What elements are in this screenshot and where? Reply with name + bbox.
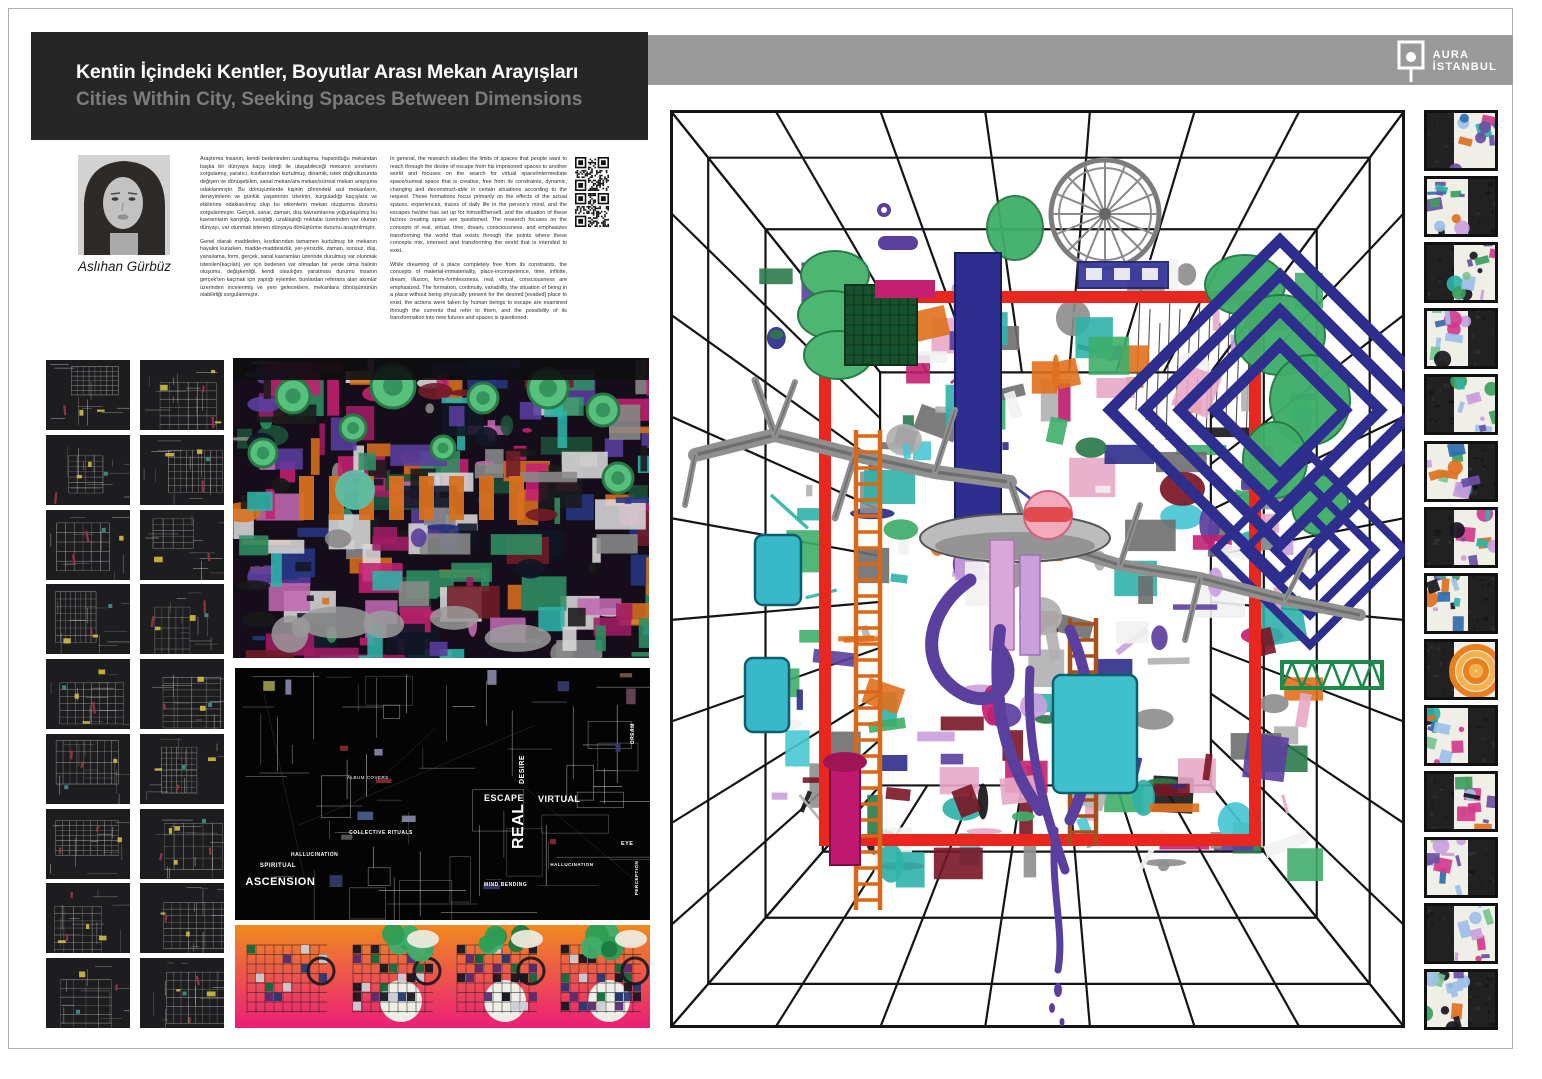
render-thumbnail	[1424, 441, 1498, 502]
cad-thumbnail	[46, 809, 130, 879]
bio-paragraph-en-2: While dreaming of a place completely fre…	[390, 262, 567, 323]
cad-thumbnail	[140, 883, 224, 953]
aura-logo-text: AURA İSTANBUL	[1433, 49, 1497, 73]
cad-thumbnail	[46, 958, 130, 1028]
render-thumbnail	[1424, 837, 1498, 898]
bio-paragraph-tr-2: Genel olarak maddeden, kısıtlarından tam…	[200, 239, 377, 300]
cad-thumbnail	[140, 435, 224, 505]
render-thumbnail	[1424, 176, 1498, 237]
cad-thumbnail	[46, 435, 130, 505]
cad-thumbnail	[140, 809, 224, 879]
qr-code	[575, 157, 609, 191]
cad-thumbnail	[46, 734, 130, 804]
map-label: ESCAPE	[484, 794, 524, 803]
render-thumbnail	[1424, 639, 1498, 700]
map-label: COLLECTIVE RITUALS	[349, 831, 413, 836]
render-thumbnail	[1424, 903, 1498, 964]
author-name: Aslıhan Gürbüz	[78, 259, 171, 274]
map-label: REAL	[511, 804, 527, 850]
cad-thumbnail	[140, 734, 224, 804]
map-label: MIND BENDING	[484, 883, 527, 888]
cad-thumbnail	[140, 584, 224, 654]
map-label: EYE	[621, 842, 634, 848]
aura-istanbul-logo: AURA İSTANBUL	[1396, 40, 1497, 82]
map-label: ALBUM COVERS	[347, 776, 389, 781]
poster-title-english: Cities Within City, Seeking Spaces Betwe…	[76, 89, 648, 111]
bio-paragraph-en-1: In general, the research studies the lim…	[390, 156, 567, 256]
cad-thumbnail	[46, 883, 130, 953]
header-block: Kentin İçindeki Kentler, Boyutlar Arası …	[31, 32, 648, 140]
elevation-strip-image	[235, 925, 650, 1028]
render-thumbnail	[1424, 242, 1498, 303]
cad-thumbnail	[140, 510, 224, 580]
map-label: PERCEPTION	[635, 861, 640, 895]
render-thumbnail	[1424, 308, 1498, 369]
top-gray-bar: AURA İSTANBUL	[648, 35, 1513, 85]
render-thumbnail	[1424, 705, 1498, 766]
map-label: ASCENSION	[245, 877, 315, 888]
bio-paragraph-tr-1: Araştırma insanın, kendi bedeninden uzak…	[200, 156, 377, 233]
aura-logo-icon	[1396, 40, 1426, 82]
cad-thumbnail	[46, 659, 130, 729]
collage-image	[233, 358, 649, 658]
cad-thumbnail	[140, 659, 224, 729]
render-thumbnail	[1424, 573, 1498, 634]
qr-code	[575, 193, 609, 227]
right-thumbnail-column	[1424, 110, 1498, 1030]
cad-thumbnail	[46, 510, 130, 580]
aura-logo-line1: AURA	[1433, 49, 1497, 61]
map-label: VIRTUAL	[538, 795, 581, 804]
cad-thumbnail	[140, 360, 224, 430]
perspective-grid-artwork	[670, 110, 1405, 1028]
map-label: DESIRE	[519, 755, 526, 784]
map-label: DREAM	[631, 723, 636, 744]
main-artwork	[670, 110, 1405, 1028]
cad-thumbnail	[46, 360, 130, 430]
map-label: HALLUCINATION	[291, 853, 338, 858]
poster-page: Kentin İçindeki Kentler, Boyutlar Arası …	[0, 0, 1542, 1079]
cad-thumbnail	[46, 584, 130, 654]
render-thumbnail	[1424, 771, 1498, 832]
map-label: SPIRITUAL	[260, 863, 296, 869]
author-photo	[78, 155, 170, 255]
render-thumbnail	[1424, 507, 1498, 568]
aura-logo-line2: İSTANBUL	[1433, 61, 1497, 73]
bio-column-english: In general, the research studies the lim…	[390, 156, 567, 329]
cad-thumbnail	[140, 958, 224, 1028]
render-thumbnail	[1424, 969, 1498, 1030]
render-thumbnail	[1424, 110, 1498, 171]
render-thumbnail	[1424, 374, 1498, 435]
left-thumbnail-grid	[46, 360, 224, 1028]
poster-title-turkish: Kentin İçindeki Kentler, Boyutlar Arası …	[76, 61, 648, 84]
map-label: HALLUCINATION	[550, 863, 593, 868]
bio-column-turkish: Araştırma insanın, kendi bedeninden uzak…	[200, 156, 377, 306]
concept-map-image: ASCENSIONSPIRITUALHALLUCINATIONALBUM COV…	[235, 668, 650, 920]
